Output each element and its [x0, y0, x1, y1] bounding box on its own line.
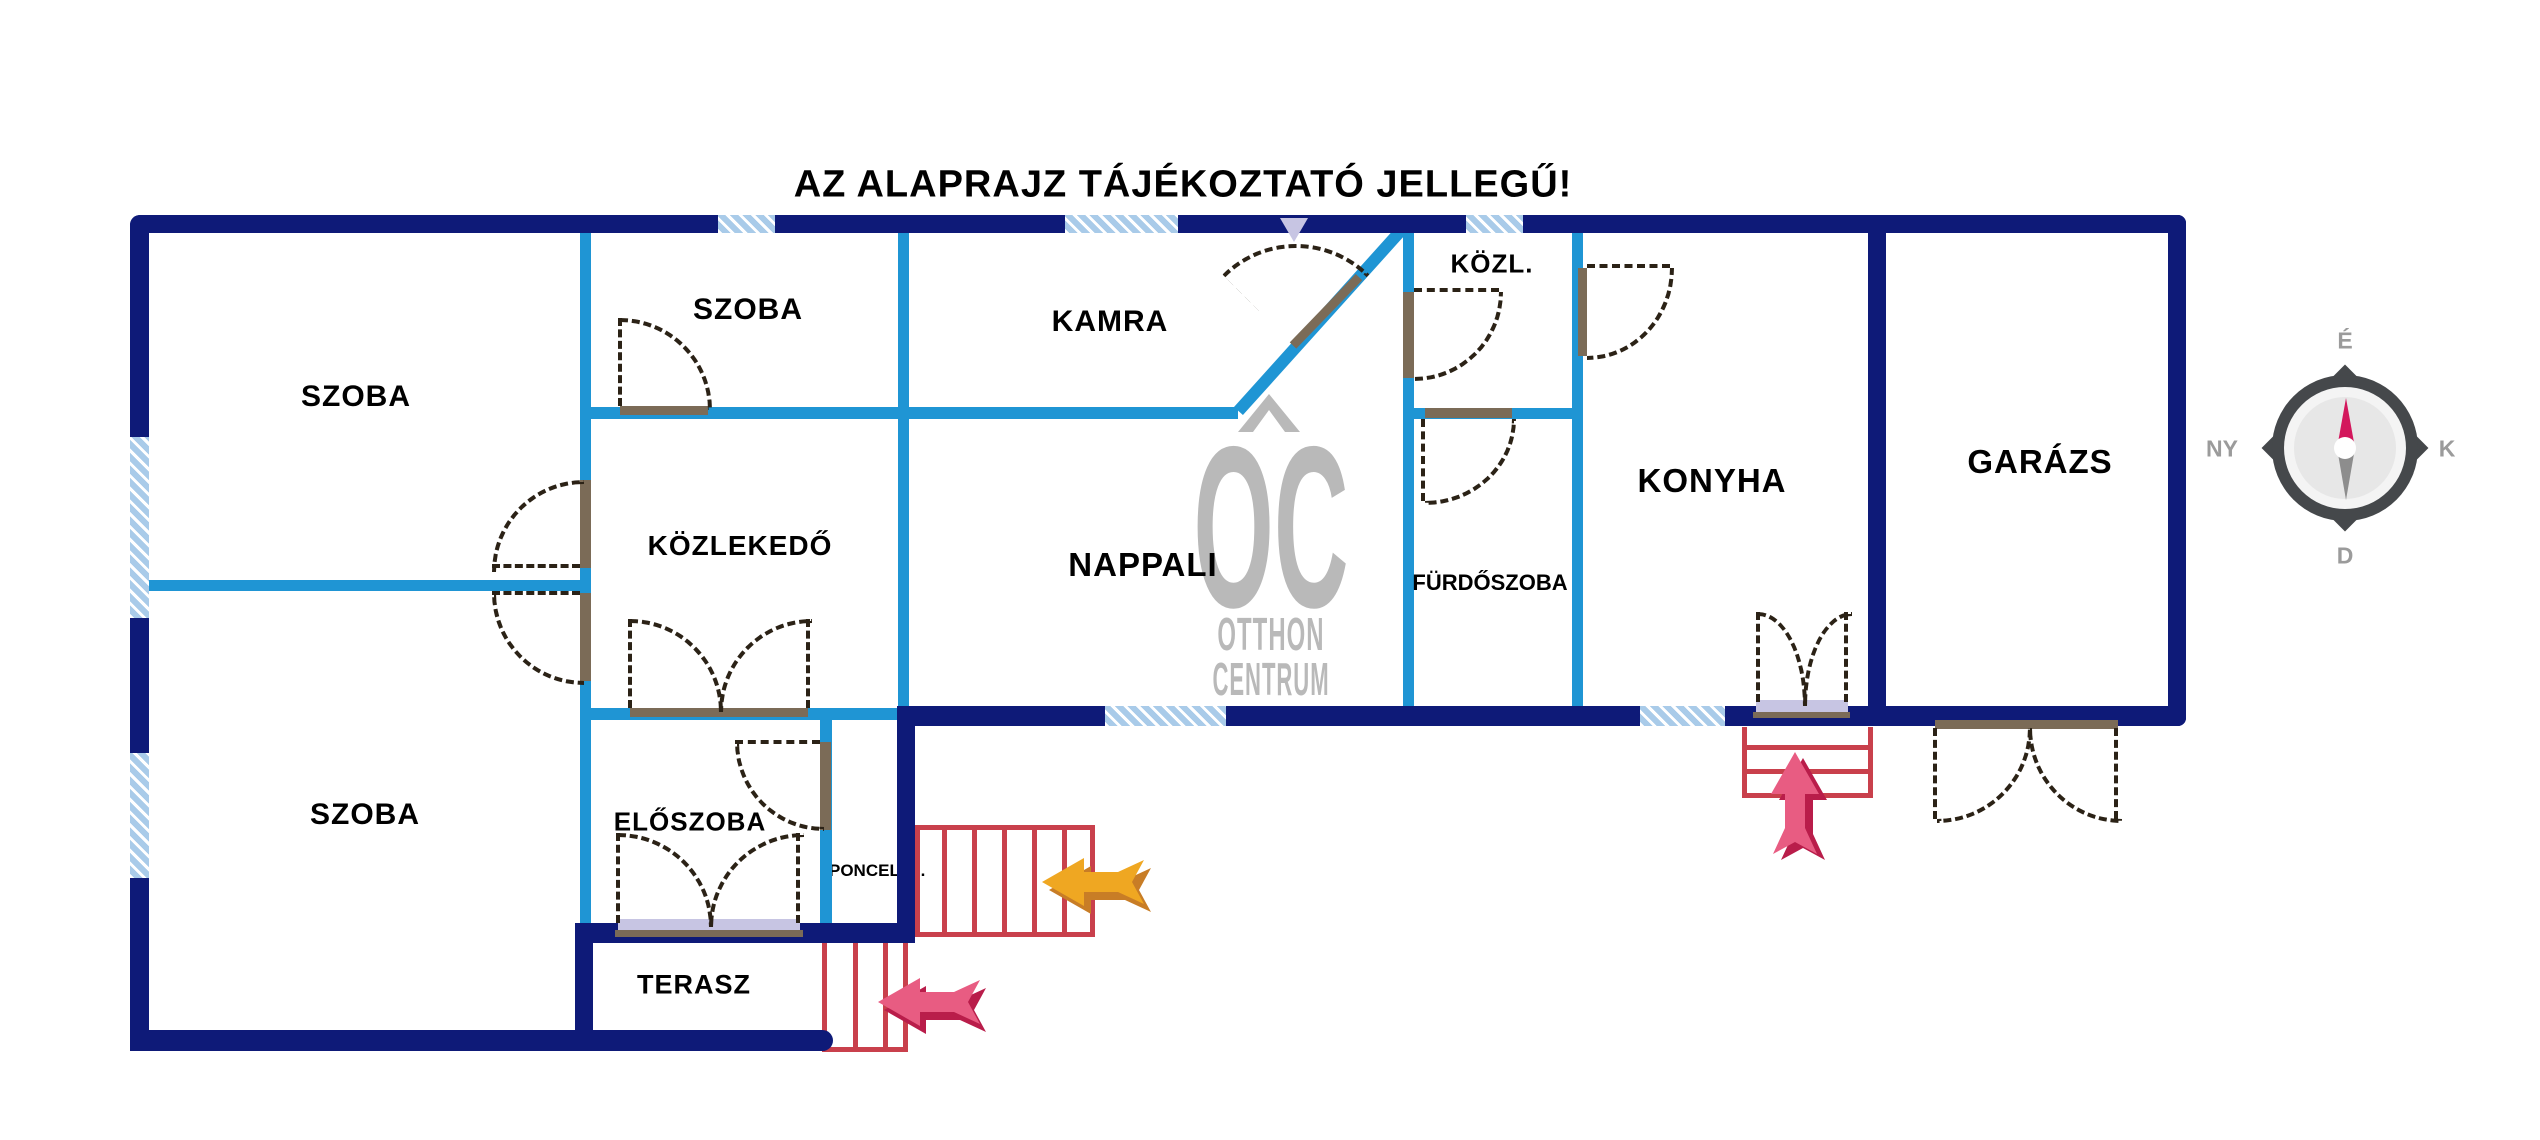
door-threshold: [1280, 218, 1308, 242]
compass-label-south: D: [2337, 543, 2354, 570]
wall-exterior-left: [130, 215, 149, 1051]
stair-tread: [1032, 830, 1037, 932]
door-arc: [630, 619, 723, 712]
door-swing-line: [492, 564, 580, 568]
wall: [898, 233, 909, 706]
room-label-kamra: KAMRA: [1052, 305, 1169, 339]
stair-tread: [942, 830, 947, 932]
wall-exterior-bottom-left: [130, 1030, 833, 1051]
room-label-terasz: TERASZ: [637, 970, 751, 1001]
compass-icon: [2225, 328, 2465, 568]
room-label-konyha: KONYHA: [1637, 462, 1786, 500]
door-swing-line: [1933, 728, 1937, 819]
door-swing-line: [2114, 728, 2118, 819]
door-arc: [1425, 419, 1516, 505]
door-leaf: [1403, 292, 1414, 378]
door-swing-line: [806, 619, 810, 708]
door-arc: [719, 619, 812, 712]
wall: [580, 233, 591, 923]
compass-label-west: NY: [2206, 436, 2238, 463]
wall-terrace-left: [575, 923, 593, 1051]
door-swing-line: [1587, 264, 1670, 268]
door-arc: [1758, 612, 1807, 706]
door-arc: [1937, 728, 2032, 823]
compass-label-east: K: [2439, 436, 2456, 463]
door-arc: [1414, 292, 1503, 381]
room-label-szoba-n: SZOBA: [693, 293, 803, 327]
door-arc: [1587, 268, 1674, 360]
door-arc: [492, 593, 584, 685]
door-swing-line: [618, 318, 622, 406]
stair-tread: [972, 830, 977, 932]
kitchen-arrow-pink-icon: [1765, 750, 1837, 870]
room-label-kozl: KÖZL.: [1451, 249, 1534, 280]
door-arc: [709, 833, 804, 927]
door-leaf: [1425, 408, 1512, 418]
window: [1640, 706, 1725, 726]
terrace-arrow-pink-icon: [876, 972, 996, 1044]
wall-garage-left: [1868, 233, 1886, 706]
room-label-nappali: NAPPALI: [1068, 546, 1217, 584]
wall: [148, 580, 580, 591]
watermark-line2: CENTRUM: [1212, 652, 1329, 706]
door-sill-edge: [615, 930, 803, 937]
room-label-szoba-nw: SZOBA: [301, 380, 411, 414]
door-swing-line: [1421, 419, 1425, 501]
door-swing-line: [616, 833, 620, 923]
door-sill-edge: [1753, 712, 1850, 718]
door-swing-line: [492, 591, 580, 595]
stair-tread: [853, 943, 858, 1047]
window: [718, 215, 775, 233]
door-swing-line: [1844, 612, 1848, 702]
room-label-eloszoba: ELŐSZOBA: [614, 807, 766, 838]
page-title: AZ ALAPRAJZ TÁJÉKOZTATÓ JELLEGŰ!: [794, 164, 1573, 207]
door-swing-line: [796, 833, 800, 923]
door-arc: [492, 480, 584, 572]
compass-label-north: É: [2337, 328, 2352, 355]
door-arc: [2028, 728, 2122, 823]
door-swing-line: [1756, 612, 1760, 702]
door-arc: [618, 833, 713, 927]
window: [130, 437, 149, 618]
window: [1065, 215, 1178, 233]
window: [1105, 706, 1226, 726]
stair-tread: [1002, 830, 1007, 932]
floor-plan: AZ ALAPRAJZ TÁJÉKOZTATÓ JELLEGŰ! OC OTTH…: [0, 0, 2540, 1140]
door-swing-line: [735, 740, 820, 744]
compass-hub: [2334, 437, 2356, 459]
room-label-kozlekedo: KÖZLEKEDŐ: [648, 530, 833, 562]
wall-exterior-right: [2168, 215, 2186, 726]
window: [130, 753, 149, 878]
door-swing-line: [1414, 288, 1499, 292]
door-arc: [620, 318, 712, 410]
entry-arrow-orange-icon: [1040, 852, 1160, 924]
room-label-szoba-sw: SZOBA: [310, 798, 420, 832]
room-label-garazs: GARÁZS: [1967, 443, 2112, 481]
door-swing-line: [628, 619, 632, 708]
wall-corridor: [897, 706, 915, 943]
room-label-furdoszoba: FÜRDŐSZOBA: [1412, 570, 1567, 596]
window: [1466, 215, 1523, 233]
door-leaf: [1578, 268, 1587, 356]
